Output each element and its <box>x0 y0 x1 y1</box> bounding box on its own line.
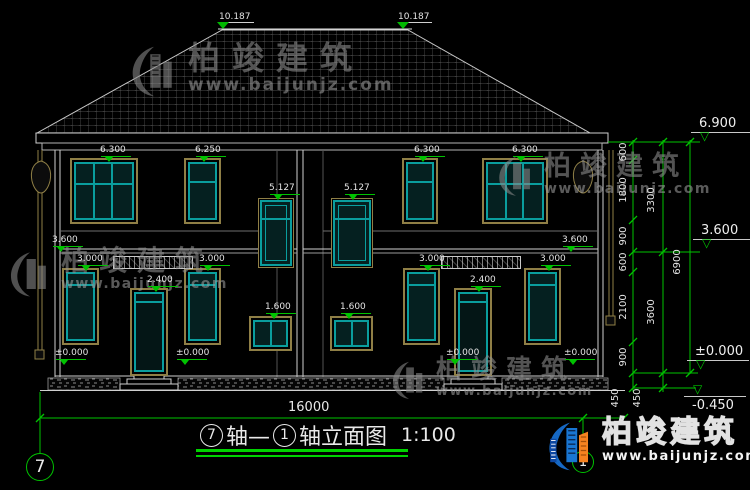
level-label: 10.187 <box>219 13 251 22</box>
window-glass <box>333 200 371 266</box>
level-label: 3.000 <box>419 255 445 264</box>
dimension-label: 900 <box>619 347 629 366</box>
level-label: 1.600 <box>340 303 366 312</box>
window-stair-left <box>258 198 294 268</box>
level-label: 3.000 <box>199 255 225 264</box>
cad-elevation-canvas: 柏竣建筑 www.baijunjz.com 柏竣建筑 www.baijunjz.… <box>0 0 750 490</box>
title-text: 轴— <box>226 419 270 451</box>
level-label: ±0.000 <box>176 349 209 358</box>
brand-watermark-icon <box>494 153 538 199</box>
brand-logo: 柏竣建筑 www.baijunjz.com <box>543 417 750 475</box>
level-label: ±0.000 <box>55 349 88 358</box>
title-underline <box>196 449 408 452</box>
total-width-dimension: 16000 <box>288 400 329 415</box>
level-label: ±0.000 <box>564 349 597 358</box>
watermark: 柏竣建筑 www.baijunjz.com <box>126 42 394 100</box>
dimension-label: 450 <box>611 388 621 407</box>
window-glass <box>253 320 288 347</box>
level-label: 2.400 <box>470 276 496 285</box>
level-label: 5.127 <box>269 184 295 193</box>
window-1f-small <box>249 316 292 351</box>
window-1f-tall <box>524 268 561 345</box>
level-label: 3.600 <box>701 224 738 237</box>
ridge-level-markers <box>217 22 432 29</box>
level-label: 10.187 <box>398 13 430 22</box>
brand-logo-icon <box>543 417 597 475</box>
dimension-label: 600 <box>619 252 629 271</box>
watermark-url: www.baijunjz.com <box>188 75 394 95</box>
brand-watermark-icon <box>388 357 430 403</box>
window-glass <box>74 162 134 220</box>
drawing-scale: 1:100 <box>401 424 456 446</box>
brand-watermark-icon <box>126 42 182 100</box>
level-label: 3.600 <box>52 236 78 245</box>
watermark-url: www.baijunjz.com <box>61 276 228 292</box>
level-label: 6.300 <box>414 146 440 155</box>
level-label: 3.000 <box>540 255 566 264</box>
window-glass <box>528 272 557 341</box>
level-label: 3.000 <box>77 255 103 264</box>
watermark: 柏竣建筑 www.baijunjz.com <box>5 247 228 301</box>
level-label: -0.450 <box>692 399 734 412</box>
dimension-label: 2100 <box>619 294 629 319</box>
watermark: 柏竣建筑 www.baijunjz.com <box>494 153 711 199</box>
title-text: 轴立面图 <box>299 419 387 451</box>
entry-door-left <box>130 288 168 376</box>
dimension-label: 1800 <box>619 177 629 202</box>
dimension-label: 900 <box>619 226 629 245</box>
axis-bubble-7-inline: 7 <box>200 424 223 447</box>
window-stair-right <box>331 198 373 268</box>
level-label: 5.127 <box>344 184 370 193</box>
window-2f-left-narrow <box>184 158 221 224</box>
window-glass <box>406 162 434 220</box>
window-glass <box>407 272 436 341</box>
window-2f-left-wide <box>70 158 138 224</box>
level-label: 6.900 <box>699 117 736 130</box>
watermark-brand: 柏竣建筑 <box>188 42 394 75</box>
brand-logo-name: 柏竣建筑 <box>602 417 750 449</box>
brand-watermark-icon <box>5 247 55 301</box>
level-label: 3.600 <box>562 236 588 245</box>
watermark: 柏竣建筑 www.baijunjz.com <box>388 357 593 403</box>
level-label: 6.250 <box>195 146 221 155</box>
watermark-url: www.baijunjz.com <box>436 384 593 399</box>
level-label: ±0.000 <box>695 345 743 358</box>
dimension-label: 600 <box>619 142 629 161</box>
drawing-title: 7 轴— 1 轴立面图 1:100 <box>197 419 456 451</box>
axis-bubble-1-inline: 1 <box>273 424 296 447</box>
level-label: 6.300 <box>100 146 126 155</box>
title-underline <box>196 455 408 457</box>
dimension-label: 3600 <box>647 299 657 324</box>
door-canopy-grille-right <box>441 256 521 269</box>
level-label: ±0.000 <box>446 349 479 358</box>
level-label: 6.300 <box>512 146 538 155</box>
window-2f-right-narrow <box>402 158 438 224</box>
window-glass <box>260 200 292 266</box>
dimension-label: 6900 <box>673 249 683 274</box>
window-glass <box>188 162 217 220</box>
brand-logo-url: www.baijunjz.com <box>602 449 750 464</box>
window-1f-tall <box>403 268 440 345</box>
dimension-label: 450 <box>633 388 643 407</box>
window-glass <box>334 320 369 347</box>
door-leaf <box>134 292 164 372</box>
axis-bubble-7: 7 <box>26 453 54 481</box>
level-label: 1.600 <box>265 303 291 312</box>
dimension-label: 3300 <box>647 187 657 212</box>
level-label: 2.400 <box>147 276 173 285</box>
window-1f-small <box>330 316 373 351</box>
